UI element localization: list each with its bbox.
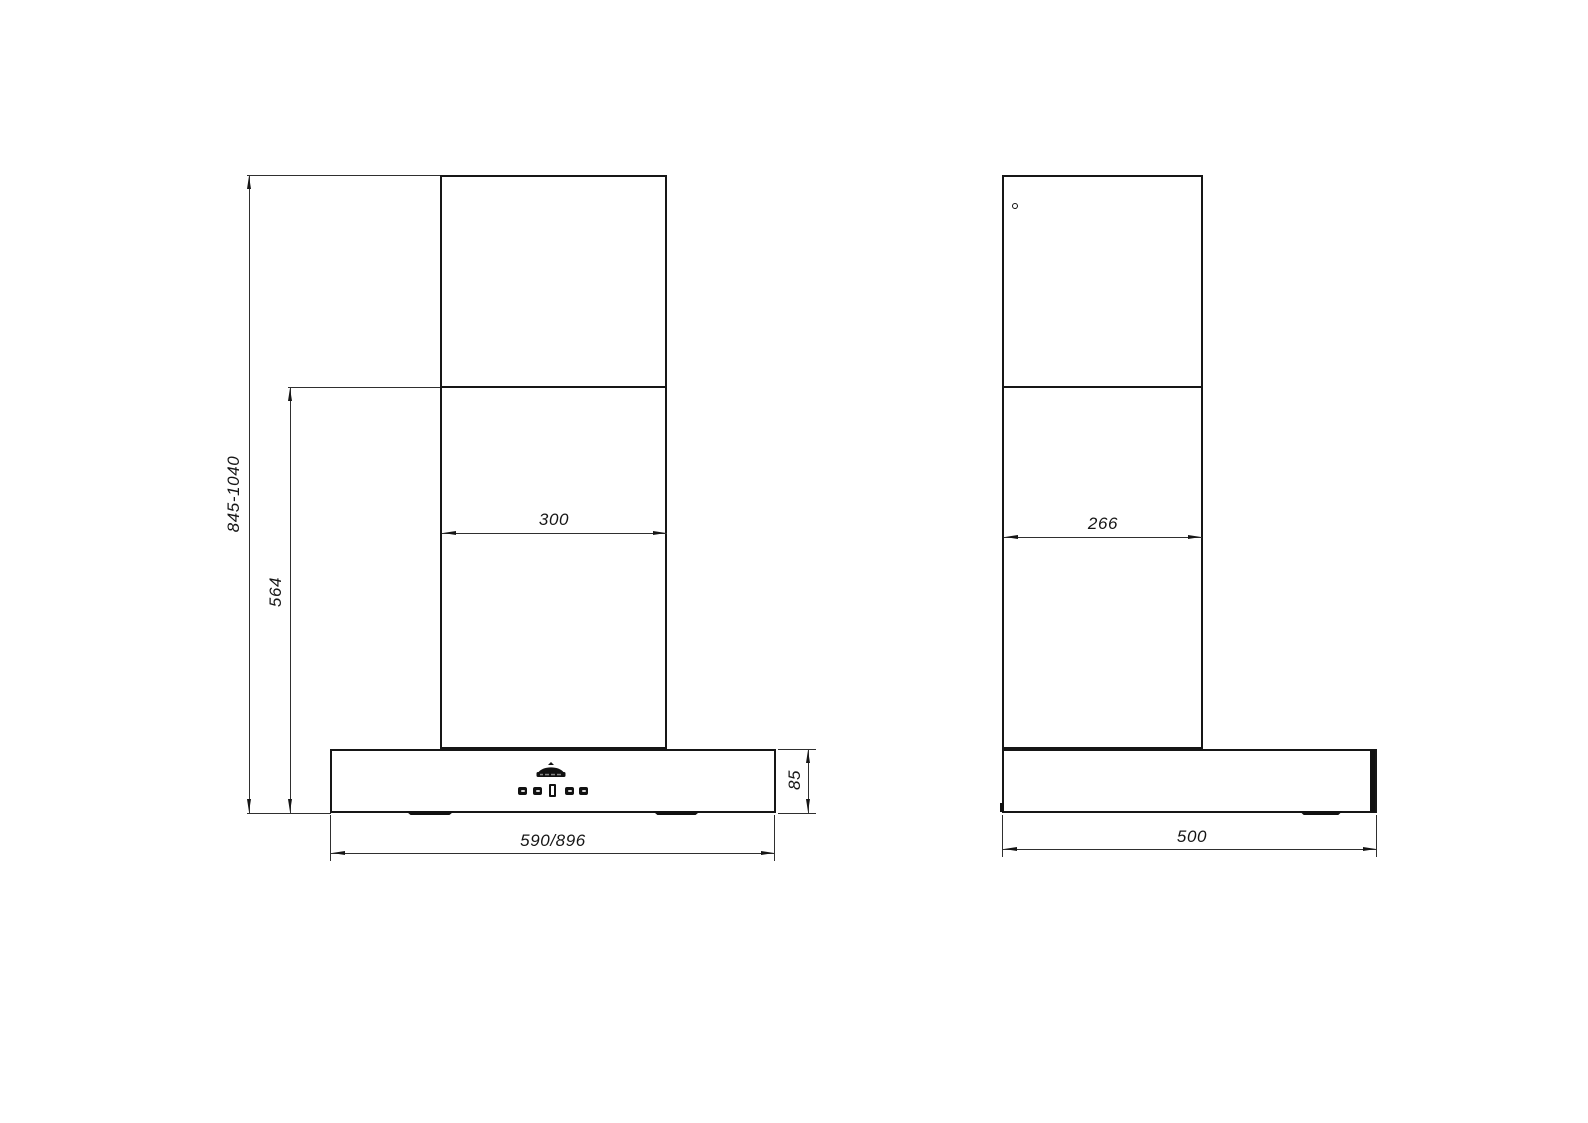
- arrowhead-icon: [247, 799, 251, 812]
- dimension-line: [1004, 537, 1202, 538]
- arrowhead-icon: [1188, 535, 1201, 539]
- dimension-line: [290, 387, 291, 813]
- arrowhead-icon: [332, 851, 345, 855]
- dim-total-height-label: 845-1040: [224, 456, 244, 533]
- arrowhead-icon: [1004, 847, 1017, 851]
- extension-line: [330, 815, 331, 861]
- control-button-2: [533, 787, 542, 795]
- dim-canopy-width-label: 590/896: [520, 831, 586, 851]
- control-button-1: [518, 787, 527, 795]
- mounting-hole: [1012, 203, 1018, 209]
- arrowhead-icon: [806, 750, 810, 763]
- arrowhead-icon: [288, 799, 292, 812]
- dim-chimney-depth-label: 266: [1088, 514, 1118, 534]
- dim-chimney-width-label: 300: [539, 510, 569, 530]
- dimension-line: [1003, 849, 1377, 850]
- dimension-line: [331, 853, 775, 854]
- dim-canopy-depth-label: 500: [1177, 827, 1207, 847]
- arrowhead-icon: [806, 799, 810, 812]
- brand-logo-icon: [533, 762, 569, 783]
- front-chimney-joint-line: [442, 386, 665, 388]
- extension-line: [1376, 815, 1377, 857]
- control-button-4: [579, 787, 588, 795]
- extension-line: [247, 813, 331, 814]
- dimension-line: [442, 533, 667, 534]
- dimension-line: [249, 175, 250, 813]
- front-chimney-duct: [440, 175, 667, 749]
- extension-line: [247, 175, 440, 176]
- arrowhead-icon: [247, 176, 251, 189]
- front-panel-edge: [1370, 750, 1375, 812]
- extension-line: [1002, 815, 1003, 857]
- side-chimney-joint-line: [1004, 386, 1201, 388]
- side-vent-strip: [1297, 811, 1345, 815]
- arrowhead-icon: [1363, 847, 1376, 851]
- arrowhead-icon: [1005, 535, 1018, 539]
- dim-canopy-height-label: 85: [785, 770, 805, 790]
- side-chimney-duct: [1002, 175, 1203, 749]
- side-hood-canopy: [1002, 749, 1377, 813]
- front-vent-strip-left: [403, 811, 457, 815]
- arrowhead-icon: [288, 388, 292, 401]
- arrowhead-icon: [443, 531, 456, 535]
- display-window: [549, 784, 556, 797]
- rear-bracket-mark: [1000, 803, 1004, 812]
- extension-line: [774, 815, 775, 861]
- extension-line: [288, 387, 440, 388]
- extension-line: [778, 749, 816, 750]
- extension-line: [778, 813, 816, 814]
- arrowhead-icon: [761, 851, 774, 855]
- arrowhead-icon: [653, 531, 666, 535]
- technical-drawing-cooker-hood: 845-1040 564 300 85: [0, 0, 1588, 1123]
- dim-lower-section-height-label: 564: [266, 577, 286, 607]
- front-vent-strip-right: [650, 811, 703, 815]
- control-button-3: [565, 787, 574, 795]
